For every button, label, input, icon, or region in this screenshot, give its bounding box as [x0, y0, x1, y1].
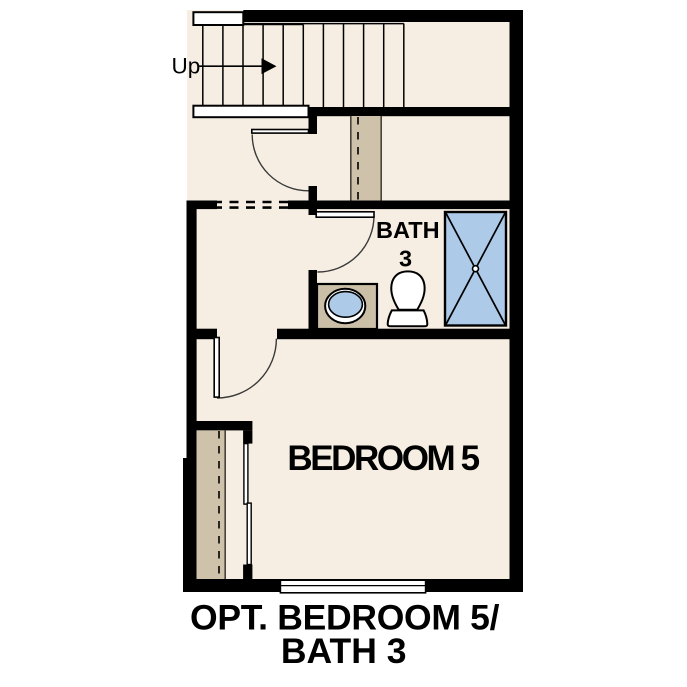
svg-text:3: 3 — [399, 245, 412, 271]
svg-text:BATH 3: BATH 3 — [281, 631, 407, 671]
svg-text:Up: Up — [172, 54, 201, 79]
svg-text:BATH: BATH — [376, 217, 440, 243]
svg-text:BEDROOM 5: BEDROOM 5 — [287, 439, 479, 478]
